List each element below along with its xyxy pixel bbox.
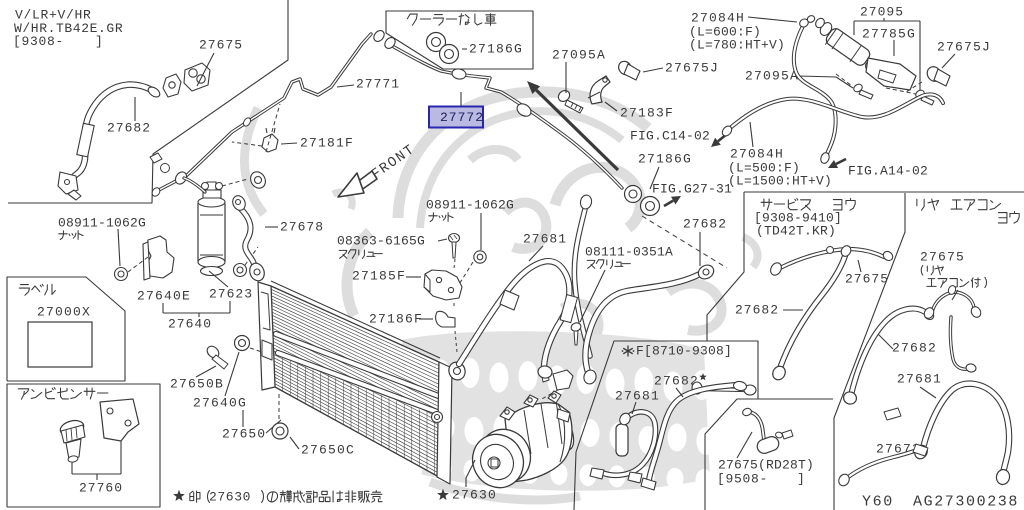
svg-text:08111-0351A: 08111-0351A	[585, 244, 673, 259]
svg-text:FIG.C14-02: FIG.C14-02	[630, 128, 710, 143]
svg-text:27181F: 27181F	[300, 135, 354, 150]
svg-text:27650B: 27650B	[170, 376, 224, 391]
svg-text:27771: 27771	[356, 76, 400, 91]
svg-text:27681: 27681	[615, 388, 660, 403]
svg-text:27681: 27681	[897, 371, 942, 386]
svg-text:27675: 27675	[845, 271, 889, 286]
svg-text:27095A: 27095A	[745, 68, 799, 83]
svg-text:27186G: 27186G	[469, 41, 523, 56]
svg-text:27682: 27682	[107, 120, 151, 135]
svg-text:27785G: 27785G	[862, 26, 916, 41]
svg-text:27640: 27640	[168, 316, 212, 331]
svg-text:27084H: 27084H	[730, 146, 784, 161]
svg-text:Y60: Y60	[862, 493, 894, 510]
svg-text:27682: 27682	[892, 340, 937, 355]
svg-text:27640G: 27640G	[193, 395, 247, 410]
svg-text:08363-6165G: 08363-6165G	[337, 233, 425, 248]
svg-text:27095: 27095	[860, 4, 904, 19]
svg-text:FIG.G27-31: FIG.G27-31	[652, 181, 732, 196]
svg-text:27675J: 27675J	[665, 60, 719, 75]
svg-text:27772: 27772	[440, 110, 484, 125]
svg-text:27630: 27630	[209, 489, 251, 504]
svg-text:(L=1500:HT+V): (L=1500:HT+V)	[728, 173, 832, 188]
svg-text:AG27300238: AG27300238	[913, 493, 1019, 510]
svg-text:F[8710-9308]: F[8710-9308]	[636, 343, 732, 358]
svg-text:(L=780:HT+V): (L=780:HT+V)	[689, 37, 785, 52]
svg-text:27682: 27682	[735, 302, 779, 317]
svg-text:08911-1062G: 08911-1062G	[426, 197, 514, 212]
svg-text:27675: 27675	[199, 37, 243, 52]
svg-text:]: ]	[95, 34, 103, 49]
svg-text:27183F: 27183F	[620, 105, 674, 120]
svg-text:27640E: 27640E	[137, 288, 191, 303]
svg-text:27681: 27681	[523, 231, 567, 246]
svg-text:27185F: 27185F	[352, 268, 406, 283]
svg-text:08911-1062G: 08911-1062G	[58, 215, 146, 230]
svg-text:27186G: 27186G	[638, 151, 692, 166]
svg-text:27186F: 27186F	[369, 311, 423, 326]
svg-text:27682: 27682	[683, 216, 727, 231]
svg-text:[9308-: [9308-	[13, 34, 64, 49]
svg-text:27650: 27650	[222, 426, 266, 441]
svg-text:27084H: 27084H	[691, 10, 745, 25]
svg-text:27675: 27675	[920, 249, 965, 264]
svg-text:27675(RD28T): 27675(RD28T)	[718, 457, 814, 472]
svg-text:27630: 27630	[452, 487, 497, 502]
svg-text:27760: 27760	[79, 480, 123, 495]
svg-text:[9508-: [9508-	[717, 471, 768, 486]
svg-text:27623: 27623	[209, 286, 253, 301]
svg-text:(TD42T.KR): (TD42T.KR)	[756, 223, 836, 238]
svg-text:27095A: 27095A	[552, 47, 606, 62]
svg-text:27675J: 27675J	[937, 39, 991, 54]
svg-text:27000X: 27000X	[37, 304, 91, 319]
svg-text:27678: 27678	[280, 219, 324, 234]
svg-text:FIG.A14-02: FIG.A14-02	[848, 163, 928, 178]
svg-text:27650C: 27650C	[301, 442, 355, 457]
svg-text:]: ]	[797, 471, 805, 486]
